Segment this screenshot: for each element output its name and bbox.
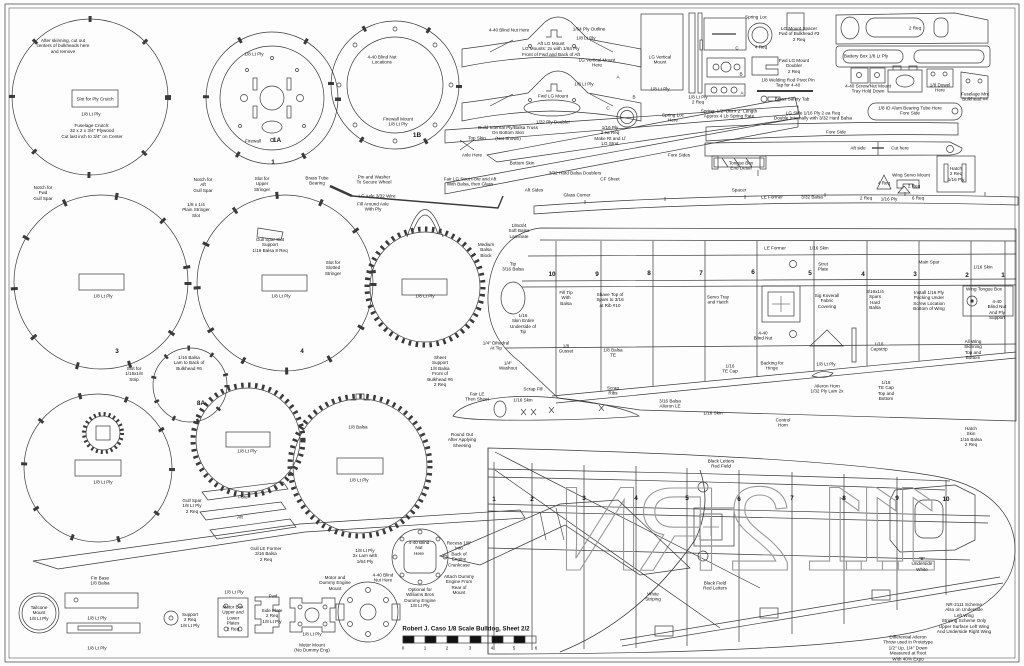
annotation-label: 10 (942, 496, 949, 504)
annotation-label: 3/16x1/4 Spars Hard Balsa (866, 289, 884, 311)
annotation-label: Fuselage Crutch: 32 x 2 x 3/4" Plywood C… (61, 123, 122, 139)
annotation-label: Recess 1/8" Into Back of Engine Crankcas… (447, 540, 472, 567)
annotation-label: 1/16 Skin Entire Underside of Tip (510, 313, 536, 335)
annotation-label: 1/64 Ply Outline (573, 26, 605, 31)
annotation-label: Tip 3/16 Balsa (502, 262, 524, 273)
annotation-label: 9 (895, 495, 899, 503)
annotation-label: 4-40 Blind Nut (754, 331, 773, 342)
annotation-label: 1/16 Capstrip (870, 342, 887, 353)
annotation-label: 3/16 Balsa Aileron LE (659, 399, 681, 410)
annotation-label: 10 (548, 271, 555, 279)
annotation-label: 4-40 Blind Nut Here (409, 540, 430, 556)
annotation-label: Fwd (269, 593, 278, 598)
annotation-label: Fuselage Mnt Bulkhead #4 (961, 92, 989, 103)
annotation-label: 1/8 Lt Ply (81, 111, 100, 116)
annotation-label: White Striping (645, 592, 661, 603)
annotation-label: Battery Box 1/8 Lt Ply (844, 53, 888, 58)
annotation-label: 2 Req (860, 195, 872, 200)
annotation-label: 1/8 Lt Ply (415, 293, 434, 298)
annotation-label: 6 (535, 645, 538, 650)
annotation-label: Fin Base 1/8 Balsa (90, 576, 109, 587)
annotation-label: Side Plate 2 Req 1/8 Lt Ply (262, 608, 283, 624)
annotation-label: 1/8 Lt Ply (349, 477, 368, 482)
annotation-label: 0 (402, 645, 405, 650)
annotation-label: 2 (530, 496, 534, 504)
annotation-label: Spring Loc (745, 14, 767, 19)
annotation-label: 1/16 Ply 2 ea Req Make Rt and Lf LG Stru… (594, 125, 625, 147)
annotation-label: 8A (197, 400, 205, 408)
annotation-label: 8 (647, 270, 651, 278)
annotation-label: 3/32 Balsa (801, 194, 823, 199)
annotation-label: 6 Req (912, 195, 924, 200)
annotation-label: Aft LG Mount LG Mounts: 2x with 1/64 Ply… (522, 41, 580, 57)
annotation-label: 1/8 x 1/4 Plain Stringer Slot (182, 202, 210, 218)
annotation-label: Firewall (245, 138, 261, 143)
annotation-label: 1/8 Lt Ply (244, 51, 263, 56)
annotation-label: Brass Safety Tab (775, 96, 810, 101)
annotation-label: CF Sheet (600, 176, 619, 181)
annotation-label: 1/16 Ply (881, 196, 898, 201)
annotation-label: Black Field Red Letters (703, 581, 727, 592)
annotation-label: 5 (513, 645, 516, 650)
annotation-label: 3 (913, 271, 917, 279)
annotation-label: LG Side 1/16 Ply 2 ea Req Double Interna… (774, 111, 852, 122)
annotation-label: Differential Aileron Throw used in Proto… (883, 634, 933, 661)
annotation-label: Brass Tube Bearing (305, 176, 328, 187)
annotation-label: 1/16 Skin (703, 410, 722, 415)
annotation-label: Hatch Skin 1/16 Balsa 2 Req (960, 426, 982, 448)
annotation-label: Optional for Williams Bros Dummy Engine … (404, 587, 435, 609)
annotation-label: 3 (582, 495, 586, 503)
annotation-label: C (735, 45, 738, 50)
annotation-label: Sheet Support 1/8 Balsa Front of Bulkhea… (427, 355, 453, 387)
annotation-label: Fore Sides (668, 152, 690, 157)
annotation-label: Scrap Fill (523, 386, 542, 391)
annotation-label: LG Vertical Mount Here (579, 58, 616, 69)
annotation-label: 6 (751, 269, 755, 277)
annotation-label: 1/16 TE Cap Top and Bottom (878, 380, 894, 402)
annotation-label: Firewall Mount 1/8 Lt Ply (383, 117, 413, 128)
annotation-label: Top Skin (468, 135, 486, 140)
annotation-label: Build Internal Ply/Balsa Truss On Bottom… (478, 125, 538, 141)
annotation-label: 1 (271, 159, 275, 167)
annotation-label: "B" Underside White (912, 556, 933, 572)
annotation-label: Main Spar (919, 259, 940, 264)
annotation-label: 7 (699, 270, 703, 278)
annotation-label: 1/8 Lt Ply (576, 35, 595, 40)
annotation-label: Control Horn (776, 418, 791, 429)
annotation-label: 1/8 Lt Ply (302, 631, 321, 636)
annotation-label: Spacer (732, 187, 747, 192)
annotation-label: 1/8 Lt Ply (574, 81, 593, 86)
annotation-label: Fair LG Strut Fore and Aft With Balsa, t… (444, 177, 497, 188)
annotation-label: Motor Mount (No Dummy Eng) (294, 643, 329, 654)
annotation-label: 1 (492, 496, 496, 504)
annotation-label: Spring: 1/2" Dia x 2" Length Approx 4 Lb… (701, 109, 757, 120)
annotation-label: Notch for Aft Gull Spar (193, 177, 212, 193)
annotation-label: 4-40 Blind Nut Here (373, 573, 394, 584)
annotation-label: 4-40 Blind Nut Locations (367, 55, 396, 66)
annotation-label: 2 (446, 645, 449, 650)
annotation-label: 1/8 Lt Ply 2 Req (688, 95, 707, 106)
annotation-label: Wing Servo Mount (892, 172, 930, 177)
annotation-label: Fwd LG Mount Doubler 2 Req (779, 58, 809, 74)
annotation-label: Aft Sides (525, 187, 543, 192)
annotation-label: 1/8 Balsa (348, 424, 367, 429)
annotation-label: Black Letters Red Field (708, 459, 735, 470)
annotation-label: Gull LE Former 3/16 Balsa 2 Req (250, 546, 281, 562)
annotation-label: Support 2 Req 1/8 Lt Ply (180, 612, 199, 628)
annotation-label: 3/32 Hard Balsa Doublers (549, 170, 602, 175)
annotation-label: 4 Req (878, 180, 890, 185)
annotation-label: 1/16 Skin (513, 397, 532, 402)
annotation-label: Motor and Dummy Engine Mount (319, 575, 350, 591)
annotation-label: 9 (595, 271, 599, 279)
annotation-label: 8 (842, 495, 846, 503)
annotation-label: LE Former (764, 245, 786, 250)
annotation-label: All Wing Skinning Top and Bottom (964, 339, 982, 361)
annotation-label: 3 (115, 348, 119, 356)
annotation-label: 1/4" Washout (499, 361, 517, 372)
annotation-label: LG Vertical Mount (649, 55, 671, 66)
annotation-label: Fore Side (826, 129, 846, 134)
annotation-label: Scrap Ribs (607, 386, 619, 397)
annotation-label: Pin and Washer To Secure Wheel (357, 175, 392, 186)
annotation-label: 2 Req (908, 183, 920, 188)
annotation-label: 1/32 Ply Doubler (536, 119, 570, 124)
annotation-label: Aft side (850, 145, 865, 150)
annotation-label: Slot for Ply Crutch (76, 96, 113, 101)
annotation-label: Tailcone Mount 1/8 Lt Ply (29, 605, 48, 621)
annotation-label: Glass Corner (563, 192, 590, 197)
annotation-label: 1/16 Skin (809, 245, 828, 250)
annotation-label: 1/8 Balsa TE (603, 348, 622, 359)
annotation-label: Fill Around Axle With Ply (357, 202, 389, 213)
annotation-label: B (632, 94, 635, 99)
annotation-label: 1/8 Gusset (559, 344, 574, 355)
annotation-label: 2 Req (909, 25, 921, 30)
annotation-label: Wing Tongue Box (966, 286, 1002, 291)
annotation-label: Slot for Slotted Stringer (325, 260, 341, 276)
sheet-title: Robert J. Caso 1/8 Scale Bulldog, Sheet … (402, 625, 529, 632)
annotation-label: 1/8 Lt Ply (816, 361, 835, 366)
annotation-label: 4 (491, 645, 494, 650)
annotation-label: NR-2111 Scheme Also on Underside Left Wi… (937, 602, 991, 634)
annotation-label: 1/16 Balsa Lam to Back of Bulkhead #6 (174, 355, 205, 371)
annotation-label: Round Out After Applying Sheeting (448, 432, 476, 448)
annotation-label: Bottom Skin (510, 160, 535, 165)
annotation-label: Gull Spar 1/8 Lt Ply 2 Req (182, 498, 201, 514)
annotation-label: Hatch 2 Req 1/16 Ply (948, 166, 965, 182)
annotation-label: 1B (413, 132, 421, 140)
annotation-label: 1/8 ID Alum Bearing Tube Here Fore Side (878, 106, 942, 117)
annotation-label: Cut here (891, 145, 909, 150)
annotation-label: 1/16 Skin (973, 264, 992, 269)
annotation-label: 1/8 Welding Rod Pivot Pin Tap for 4-40 (761, 78, 814, 89)
annotation-label: 2 (965, 272, 969, 280)
annotation-label: Notch for Fwd Gull Spar (33, 185, 52, 201)
annotation-label: 1/8 Lt Ply (224, 589, 243, 594)
plan-sheet: NR2111 (0, 0, 1024, 666)
annotation-label: Slot for 1/16x1/8 Strip (125, 366, 143, 382)
annotation-label: 1/8 Lt Ply (271, 293, 290, 298)
annotation-label: Shave Top of Spars to 3/16 at Rib #10 (596, 292, 623, 308)
annotation-label: 4 (300, 348, 304, 356)
annotation-label: 1/8 Lt Ply (87, 645, 106, 650)
annotation-label: 1/8 Lt Ply (93, 479, 112, 484)
annotation-label: Spring Loc Here (662, 113, 684, 124)
annotation-label: Fair LE Then Sheet (465, 392, 489, 403)
annotation-label: Tongue Box End Detail (729, 161, 753, 172)
annotation-label: Sig Koverall Fabric Covering (815, 293, 840, 309)
annotation-label: 5 (685, 495, 689, 503)
annotation-label: 1/8 Lt Ply (87, 615, 106, 620)
annotation-label: Motor Box Upper and Lower Plates 2 Req (222, 604, 243, 631)
annotation-label: 1/8 Lt Ply 2x Lam with 1/64 Ply (353, 548, 378, 564)
annotation-label: 4-40 Blind Nut Here (489, 27, 529, 32)
annotation-label: 4 Req (755, 44, 767, 49)
annotation-label: 6 (737, 496, 741, 504)
annotation-label: Servo Tray and Hatch (707, 295, 729, 306)
annotation-label: LE Former (761, 194, 783, 199)
annotation-label: Strut Plate (818, 262, 828, 273)
annotation-label: Backing for Hinge (761, 361, 784, 372)
annotation-label: C (606, 105, 609, 110)
annotation-label: B (739, 71, 742, 76)
annotation-label: 1A (273, 137, 281, 145)
annotation-label: 1/8x3/4 Soft Balsa Laminate (509, 223, 530, 239)
annotation-label: LG Mount Spacer Fwd of Bulkhead #3 2 Req (779, 26, 820, 42)
annotation-label: Install 1/16 Ply Packing Under Screw Loc… (913, 290, 944, 312)
annotation-label: Fore (238, 494, 247, 499)
annotation-label: 4 (634, 495, 638, 503)
annotation-label: Aft (237, 514, 243, 519)
annotation-label: 1/8 Lt Ply (93, 293, 112, 298)
annotation-label: A (740, 90, 743, 95)
annotation-layer: Robert J. Caso 1/8 Scale Bulldog, Sheet … (0, 0, 1024, 666)
annotation-label: Slot for Upper Stringer (254, 176, 270, 192)
annotation-label: 1/8 Dowel Here (930, 83, 950, 94)
annotation-label: A (616, 74, 619, 79)
annotation-label: 1 (424, 645, 427, 650)
annotation-label: 1/8 Lt Ply (237, 448, 256, 453)
annotation-label: Aileron Horn 1/32 Ply Lam 2x (811, 384, 844, 395)
annotation-label: Gull Spar Slot Support 1/16 Balsa 8 Req (252, 237, 287, 253)
annotation-label: 1 (1001, 272, 1005, 280)
annotation-label: 1/4" Dihedral At Tip (483, 341, 509, 352)
annotation-label: Axle Here (462, 152, 482, 157)
annotation-label: 1/16 TE Cap (722, 364, 738, 375)
annotation-label: 4-40 Screw/Nut Mount Tray Hold Down (845, 84, 891, 95)
annotation-label: Fill Tip With Balsa (559, 290, 572, 306)
annotation-label: 3 (469, 645, 472, 650)
annotation-label: Medium Balsa Block (478, 242, 494, 258)
annotation-label: 1/8 Lt Ply (650, 86, 669, 91)
annotation-label: Fwd LG Mount (538, 93, 568, 98)
annotation-label: 5 (808, 270, 812, 278)
annotation-label: 4-40 Blind Nut And Ply Support (988, 299, 1007, 321)
annotation-label: Attach Dummy Engine From Rear of Mount (444, 574, 474, 596)
annotation-label: LG Axle 3/32 Wire (358, 193, 395, 198)
annotation-label: 7 (790, 495, 794, 503)
annotation-label: 4 (861, 271, 865, 279)
annotation-label: After skinning, cut out centers of bulkh… (37, 38, 90, 54)
